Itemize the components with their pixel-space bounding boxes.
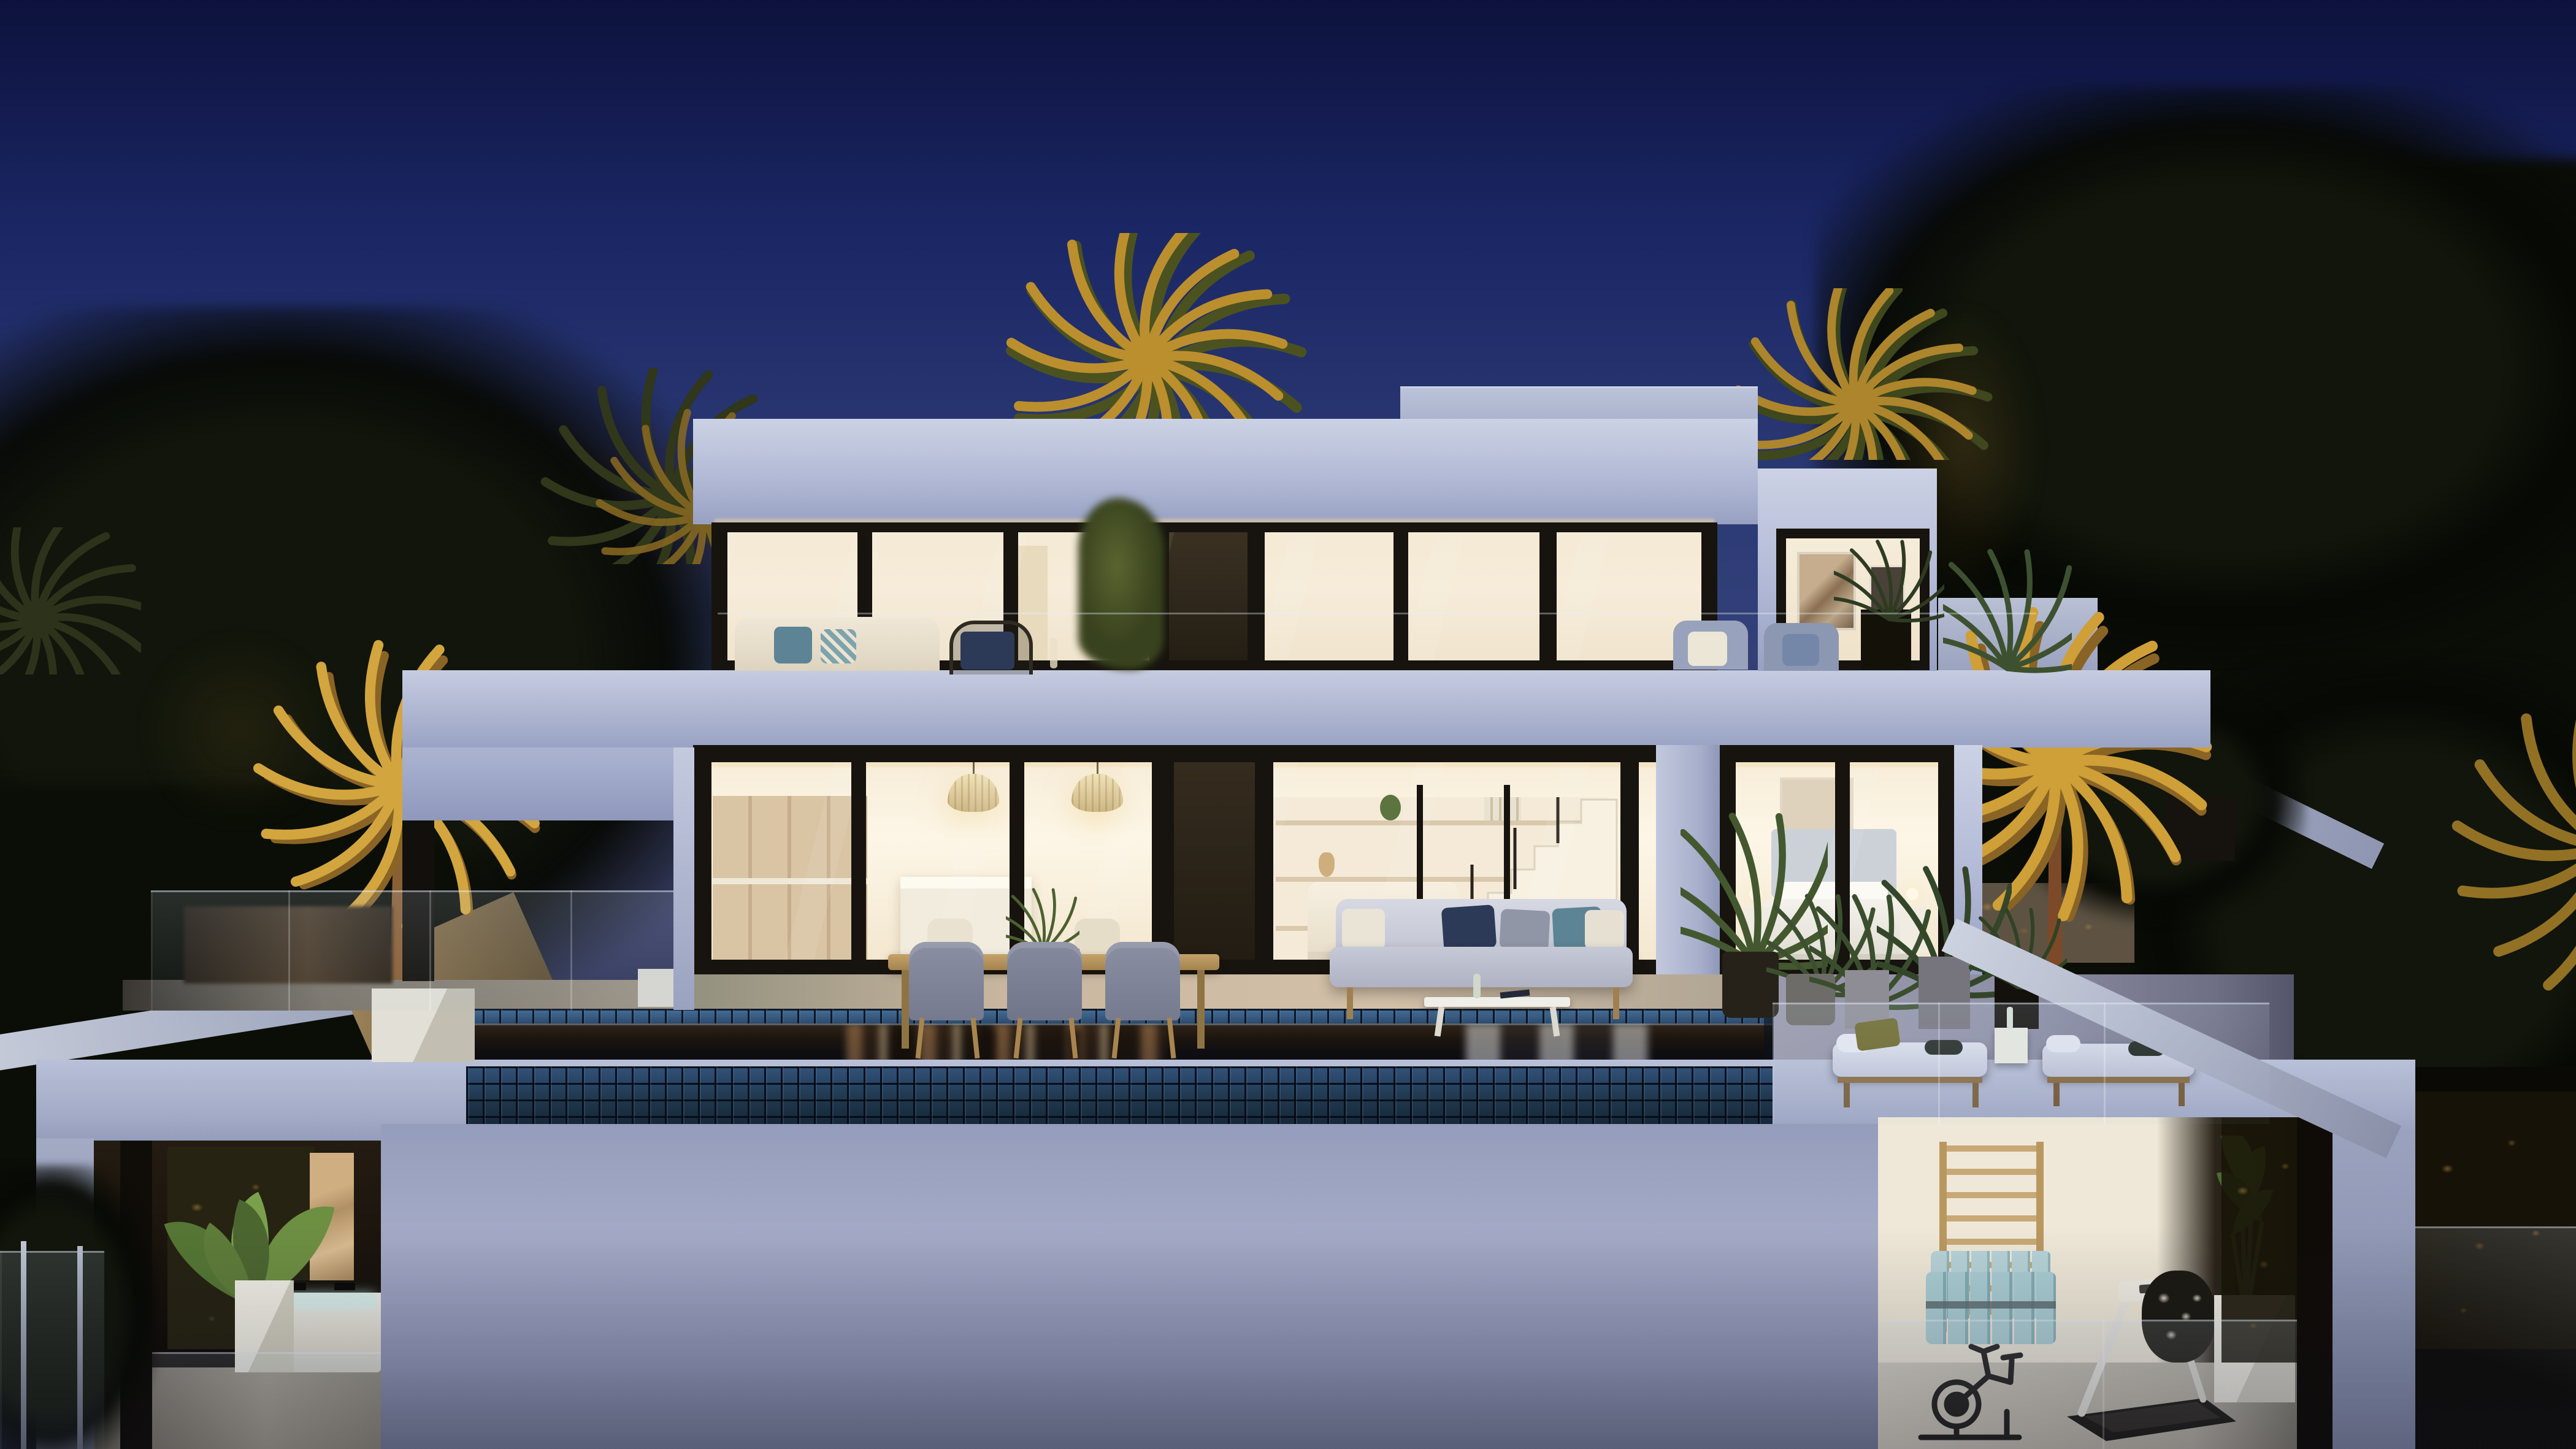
upper-balustrade-glass-edge xyxy=(718,613,2036,614)
table-bottle xyxy=(1473,974,1481,998)
right-edge-palm-fronds-icon xyxy=(2429,699,2576,1018)
open-slider-dark xyxy=(1174,762,1255,960)
lower-wall-center xyxy=(381,1124,1878,1449)
hedge-glass-sheen xyxy=(2415,1226,2576,1449)
glass-joint xyxy=(570,890,572,1011)
yoga-mats-straps xyxy=(1926,1301,2056,1309)
upper-floor-parapet xyxy=(693,419,1758,524)
balcony-shrub xyxy=(1078,498,1164,670)
villa-dusk-render xyxy=(0,0,2576,1449)
window-mullion xyxy=(1152,745,1174,974)
balcony-pillow-pattern xyxy=(821,629,856,663)
balcony-carafe xyxy=(1050,638,1057,668)
sofa-leg xyxy=(1347,987,1353,1019)
dining-table-leg xyxy=(1197,970,1205,1049)
sofa-pillow-white xyxy=(1342,909,1385,949)
deck-glass-balustrade xyxy=(1773,1003,2269,1124)
glass-joint xyxy=(2104,1003,2106,1124)
gym-pillar xyxy=(2297,1117,2333,1449)
balcony-pillow-blue xyxy=(1782,634,1819,666)
coffee-table xyxy=(1424,997,1570,1007)
penthouse-box xyxy=(1400,386,1758,423)
foreground-glass-railing xyxy=(0,1251,104,1449)
sofa-pillow-grey xyxy=(1499,909,1550,950)
glass-joint xyxy=(2103,1320,2104,1449)
window-frame xyxy=(693,745,1957,762)
window-mullion xyxy=(1248,522,1265,670)
balcony-pillow-white xyxy=(1688,632,1727,666)
railing-post xyxy=(77,1246,83,1449)
balcony-chair-pillow-navy xyxy=(960,632,1014,670)
glass-joint xyxy=(429,890,431,1011)
window-mullion xyxy=(693,745,711,974)
pool-front-overlap xyxy=(466,1066,1773,1124)
balcony-planter-plant-icon xyxy=(1834,527,1944,625)
rooftop-palm-center-icon xyxy=(994,233,1313,423)
railing-post xyxy=(21,1241,26,1449)
window-mullion xyxy=(851,745,866,974)
window-mullion xyxy=(1255,745,1273,974)
glass-joint xyxy=(1938,1003,1940,1124)
sofa-pillow-navy xyxy=(1441,904,1497,951)
outdoor-sofa-seat xyxy=(1330,947,1633,987)
dining-table-leg xyxy=(902,970,909,1049)
lower-wall-right-edge xyxy=(2328,1134,2415,1449)
window-mullion xyxy=(1539,522,1557,670)
sofa-leg xyxy=(1613,987,1619,1019)
window-mullion xyxy=(1393,522,1408,670)
dining-chair xyxy=(1105,942,1180,1020)
home-gym xyxy=(1878,1117,2328,1449)
dining-chair xyxy=(1007,942,1082,1020)
house-side-sliver xyxy=(673,747,694,1010)
mid-slab xyxy=(402,670,2210,747)
balcony-pillow-teal xyxy=(774,627,812,663)
walkway-glass-balustrade xyxy=(151,890,693,1011)
dining-chair xyxy=(909,942,984,1020)
window-mullion xyxy=(711,522,727,670)
far-left-palm-icon xyxy=(0,527,141,675)
monstera-right-terrace-icon xyxy=(1943,527,2072,675)
right-hedge-corner xyxy=(2415,1067,2576,1449)
sofa-pillow-white xyxy=(1585,910,1624,949)
glass-joint xyxy=(288,890,290,1011)
